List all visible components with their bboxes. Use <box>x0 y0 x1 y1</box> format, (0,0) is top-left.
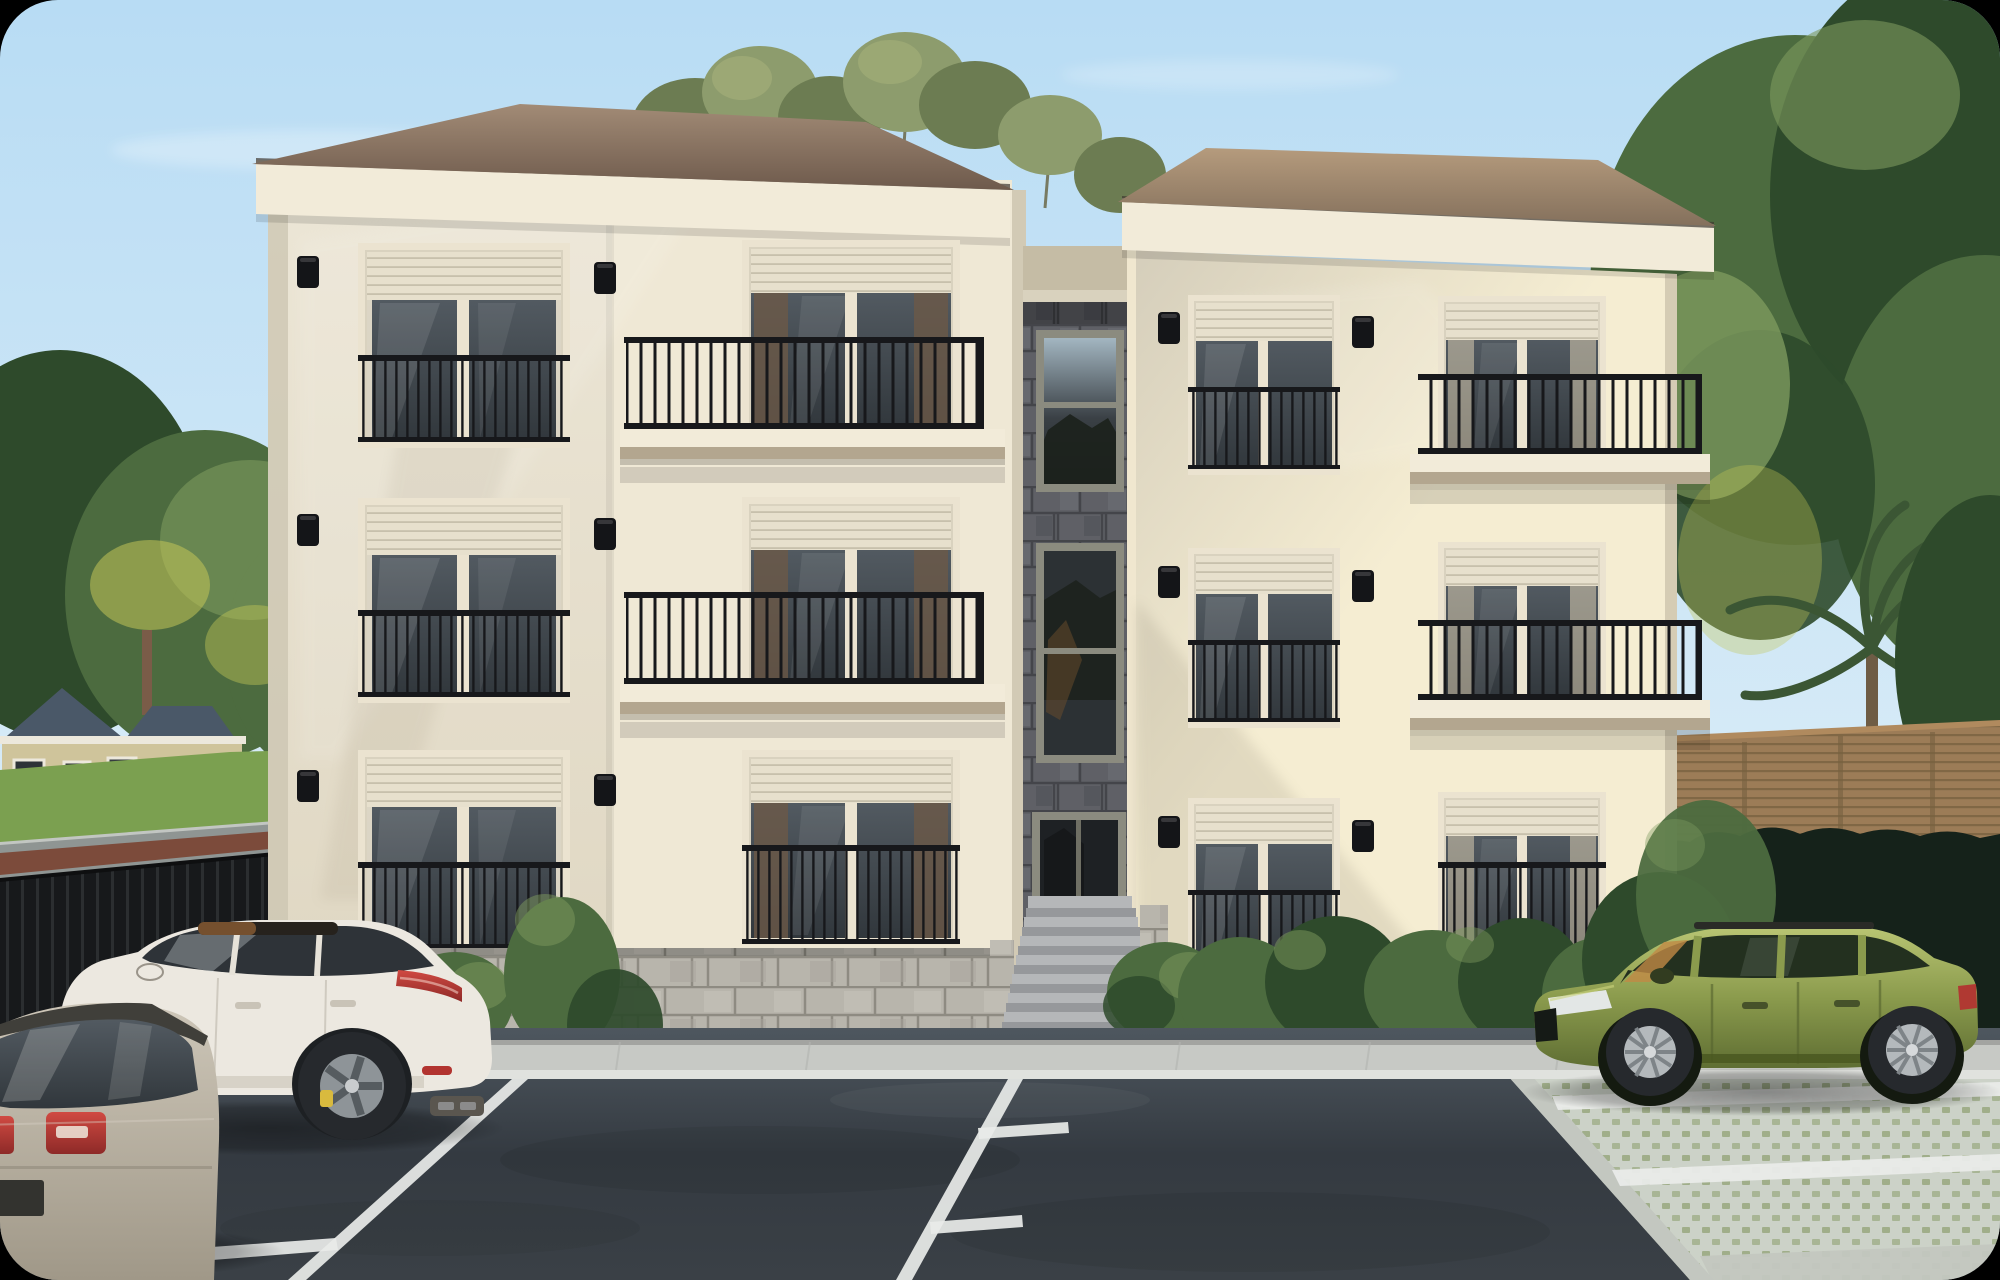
balcony-right-f3 <box>1410 374 1710 490</box>
left-wing <box>252 104 1014 955</box>
wall-lamp <box>297 514 319 546</box>
wall-lamp <box>297 770 319 802</box>
window-left-f3 <box>358 243 570 448</box>
wall-lamp <box>594 262 616 294</box>
balcony-right-f2 <box>1410 620 1710 736</box>
right-wing <box>1118 148 1716 978</box>
stairwell-window-upper <box>1036 330 1124 492</box>
juliet-railing-left-f1 <box>742 845 960 944</box>
wall-lamp <box>594 518 616 550</box>
wall-lamp <box>594 774 616 806</box>
window-right-f3 <box>1188 295 1340 475</box>
suv-brake-caliper <box>320 1090 333 1107</box>
window-right-f2 <box>1188 548 1340 728</box>
suv-wheel-rear <box>292 1028 412 1140</box>
stairwell-window-middle <box>1036 543 1124 763</box>
balcony-left-f3 <box>620 337 1005 465</box>
architectural-rendering <box>0 0 2000 1280</box>
entrance-door <box>1032 812 1126 910</box>
wall-lamp <box>297 256 319 288</box>
window-left-f2 <box>358 498 570 703</box>
wall-lamp <box>1158 566 1180 598</box>
balcony-left-f2 <box>620 592 1005 720</box>
apartment-building <box>252 104 1716 1041</box>
wagon-taillight <box>1958 984 1977 1010</box>
wall-lamp <box>1158 312 1180 344</box>
wall-lamp <box>1352 820 1374 852</box>
wagon-grille <box>1534 1008 1558 1042</box>
wall-lamp <box>1158 816 1180 848</box>
wall-lamp <box>1352 570 1374 602</box>
wagon-roof-rail <box>1694 922 1874 929</box>
wall-lamp <box>1352 316 1374 348</box>
